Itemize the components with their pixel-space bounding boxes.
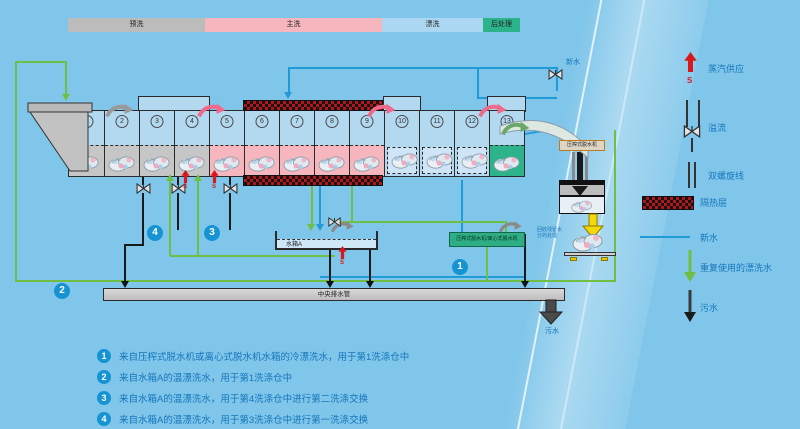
press-rod bbox=[572, 152, 575, 182]
laundry-icon bbox=[425, 150, 455, 169]
legend-steam-s-label: S bbox=[687, 76, 692, 85]
pipe-reuse-hopper bbox=[65, 61, 67, 94]
compartment-number: 13 bbox=[501, 115, 514, 128]
laundry-chamber bbox=[422, 147, 452, 174]
pipe-cold-rinse-h bbox=[320, 276, 525, 278]
compartment-number: 6 bbox=[256, 115, 269, 128]
pipe-fresh-to-dewater bbox=[461, 180, 463, 232]
laundry-icon bbox=[212, 153, 242, 172]
laundry-chamber bbox=[457, 147, 487, 174]
pipe-fresh-top bbox=[288, 67, 557, 69]
legend-double-spiral-icon bbox=[689, 162, 695, 188]
laundry-icon bbox=[177, 153, 207, 172]
steam-s-label: S bbox=[340, 260, 344, 266]
pipe-reuse-left-v bbox=[15, 61, 17, 282]
pipe-fresh-drop2 bbox=[477, 67, 479, 98]
arrowhead-black bbox=[521, 281, 529, 288]
tank-a-label: 水箱A bbox=[286, 239, 302, 248]
laundry-icon bbox=[317, 153, 347, 172]
residual-water-note: 回收残留水 分的处理 bbox=[537, 227, 562, 239]
note-row-2: 2 来自水箱A的温漂洗水，用于第1洗涤仓中 bbox=[97, 370, 292, 384]
legend-label-overflow: 溢流 bbox=[708, 121, 726, 134]
tunnel-washer-diagram: 预洗 主洗 漂洗 后处理 12345678910111213 中央排水管 bbox=[0, 0, 800, 429]
tank-valve-icon bbox=[329, 218, 340, 226]
fresh-water-label: 新水 bbox=[566, 57, 580, 67]
compartment-7: 7 bbox=[279, 111, 314, 176]
pipe-reuse-tank-v1 bbox=[351, 180, 353, 222]
drain-valve-icon bbox=[137, 184, 150, 193]
steam-s-label: S bbox=[212, 184, 216, 190]
compartment-number: 9 bbox=[361, 115, 374, 128]
note-row-1: 1 来自压榨式脱水机或离心式脱水机水箱的冷漂洗水，用于第1洗涤仓中 bbox=[97, 349, 409, 363]
press-chamber bbox=[559, 196, 605, 214]
laundry-icon bbox=[71, 153, 101, 172]
drain-v-2 bbox=[177, 193, 179, 230]
flow-marker-2: 2 bbox=[54, 283, 70, 299]
drain-v-1 bbox=[142, 193, 144, 245]
flow-marker-1: 1 bbox=[452, 259, 468, 275]
laundry-chamber bbox=[105, 145, 139, 176]
legend-label-spiral: 双螺旋线 bbox=[708, 169, 744, 182]
laundry-icon bbox=[492, 153, 522, 172]
pipe-reuse-top-h bbox=[15, 61, 67, 63]
arrowhead-black bbox=[366, 281, 374, 288]
laundry-chamber bbox=[280, 145, 314, 176]
laundry-chamber bbox=[210, 145, 244, 176]
drain-to-main-1 bbox=[124, 244, 126, 282]
note-number: 2 bbox=[97, 370, 111, 384]
phase-mainwash: 主洗 bbox=[205, 18, 382, 32]
flow-marker-3: 3 bbox=[204, 225, 220, 241]
laundry-icon bbox=[460, 150, 490, 169]
pipe-fresh-drop1 bbox=[288, 67, 290, 94]
laundry-icon bbox=[247, 153, 277, 172]
laundry-chamber bbox=[245, 145, 279, 176]
compartment-number: 3 bbox=[151, 115, 164, 128]
tank-drain-1 bbox=[329, 250, 331, 282]
arrowhead-black bbox=[121, 281, 129, 288]
compartment-number: 8 bbox=[326, 115, 339, 128]
laundry-chamber bbox=[69, 145, 104, 176]
note-text: 来自水箱A的温漂洗水，用于第4洗涤仓中进行第二洗涤交换 bbox=[119, 391, 368, 405]
drain-v-3 bbox=[229, 193, 231, 230]
compartment-number: 4 bbox=[186, 115, 199, 128]
compartment-5: 5 bbox=[209, 111, 244, 176]
compartment-10: 10 bbox=[384, 111, 419, 176]
pipe-fresh-valve-stub bbox=[556, 67, 558, 91]
note-number: 4 bbox=[97, 412, 111, 426]
phase-prewash: 预洗 bbox=[68, 18, 205, 32]
phase-bar: 预洗 主洗 漂洗 后处理 bbox=[68, 18, 520, 32]
laundry-icon bbox=[107, 153, 137, 172]
laundry-chamber bbox=[315, 145, 349, 176]
dewater-combo-box: 压榨式脱水机/离心式脱水机 bbox=[449, 232, 525, 247]
background-swoosh bbox=[480, 0, 716, 429]
laundry-chamber bbox=[490, 145, 524, 176]
press-head bbox=[559, 180, 605, 196]
sewage-label: 污水 bbox=[545, 326, 559, 336]
laundry-icon bbox=[142, 153, 172, 172]
legend-label-fresh: 新水 bbox=[700, 231, 718, 244]
note-number: 3 bbox=[97, 391, 111, 405]
pipe-reuse-mid-h bbox=[340, 221, 507, 223]
compartment-number: 11 bbox=[431, 115, 444, 128]
legend-fresh-water-line bbox=[640, 236, 690, 238]
compartment-number: 12 bbox=[466, 115, 479, 128]
flow-marker-4: 4 bbox=[147, 225, 163, 241]
compartment-1: 1 bbox=[69, 111, 104, 176]
central-drain-label: 中央排水管 bbox=[318, 291, 351, 298]
note-text: 来自压榨式脱水机或离心式脱水机水箱的冷漂洗水，用于第1洗涤仓中 bbox=[119, 349, 409, 363]
note-row-3: 3 来自水箱A的温漂洗水，用于第4洗涤仓中进行第二洗涤交换 bbox=[97, 391, 368, 405]
compartment-number: 10 bbox=[396, 115, 409, 128]
legend-label-reused: 重复使用的漂洗水 bbox=[700, 261, 772, 274]
legend-label-insulation: 隔热层 bbox=[700, 196, 727, 209]
phase-rinse: 漂洗 bbox=[382, 18, 483, 32]
laundry-icon bbox=[390, 150, 420, 169]
press-platform bbox=[564, 252, 616, 256]
compartment-12: 12 bbox=[454, 111, 489, 176]
tank-bottom bbox=[275, 248, 378, 250]
arrowhead-black bbox=[326, 281, 334, 288]
legend-insulation-swatch bbox=[642, 196, 694, 210]
pipe-reuse-tank-v2 bbox=[311, 180, 313, 226]
compartment-6: 6 bbox=[244, 111, 279, 176]
note-row-4: 4 来自水箱A的温漂洗水，用于第3洗涤仓中进行第一洗涤交换 bbox=[97, 412, 368, 426]
note-text: 来自水箱A的温漂洗水，用于第3洗涤仓中进行第一洗涤交换 bbox=[119, 412, 368, 426]
laundry-chamber bbox=[350, 145, 384, 176]
pipe-reuse-right-v bbox=[614, 130, 616, 282]
compartment-2: 2 bbox=[104, 111, 139, 176]
pipe-reuse-comp-h bbox=[170, 255, 335, 257]
insulation-strip-top bbox=[243, 100, 383, 111]
compartment-9: 9 bbox=[349, 111, 384, 176]
pipe-fresh-to-tank bbox=[319, 180, 321, 228]
laundry-icon bbox=[352, 153, 382, 172]
pipe-reuse-comp3 bbox=[197, 181, 199, 256]
compartment-number: 5 bbox=[221, 115, 234, 128]
platform-foot bbox=[601, 257, 608, 261]
compartment-3: 3 bbox=[139, 111, 174, 176]
compartment-4: 4 bbox=[174, 111, 209, 176]
press-dewater-label: 压榨式脱水机 bbox=[559, 140, 605, 151]
tank-drain-2 bbox=[369, 250, 371, 282]
insulation-strip-bottom bbox=[243, 175, 383, 186]
laundry-chamber bbox=[140, 145, 174, 176]
legend-label-waste: 污水 bbox=[700, 301, 718, 314]
laundry-icon bbox=[282, 153, 312, 172]
steam-s-label: S bbox=[183, 184, 187, 190]
compartment-number: 7 bbox=[291, 115, 304, 128]
legend-waste-icon bbox=[684, 290, 696, 322]
compartment-8: 8 bbox=[314, 111, 349, 176]
central-drain-pipe: 中央排水管 bbox=[103, 288, 565, 301]
drain-valve-icon bbox=[224, 184, 237, 193]
drain-h-1 bbox=[124, 244, 144, 246]
legend-reused-rinse-icon bbox=[684, 250, 696, 282]
laundry-chamber bbox=[387, 147, 417, 174]
compartment-13: 13 bbox=[489, 111, 524, 176]
platform-foot bbox=[570, 257, 577, 261]
compartment-number: 1 bbox=[80, 115, 93, 128]
note-text: 来自水箱A的温漂洗水，用于第1洗涤仓中 bbox=[119, 370, 292, 384]
arrowhead-green bbox=[62, 94, 70, 101]
pipe-reuse-comp4 bbox=[169, 181, 171, 256]
compartment-number: 2 bbox=[116, 115, 129, 128]
laundry-chamber bbox=[175, 145, 209, 176]
phase-post: 后处理 bbox=[483, 18, 520, 32]
press-rod bbox=[585, 152, 588, 182]
pipe-reuse-box-out bbox=[486, 247, 488, 281]
residual-line2: 分的处理 bbox=[537, 233, 562, 239]
compartment-11: 11 bbox=[419, 111, 454, 176]
note-number: 1 bbox=[97, 349, 111, 363]
tunnel-compartments: 12345678910111213 bbox=[68, 110, 525, 177]
legend-label-steam: 蒸汽供应 bbox=[708, 62, 744, 75]
